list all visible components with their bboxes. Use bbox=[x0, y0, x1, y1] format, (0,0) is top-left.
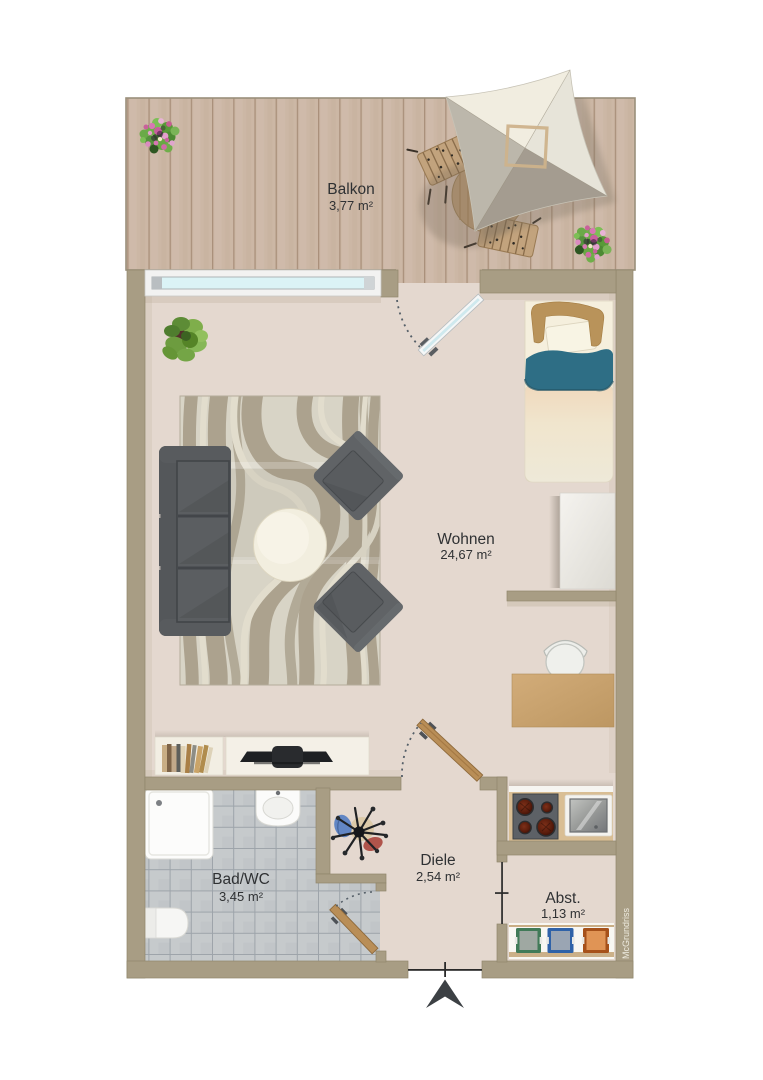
svg-text:3,45 m²: 3,45 m² bbox=[219, 889, 264, 904]
svg-text:Bad/WC: Bad/WC bbox=[212, 871, 270, 888]
svg-text:Wohnen: Wohnen bbox=[437, 531, 494, 548]
svg-text:2,54 m²: 2,54 m² bbox=[416, 869, 461, 884]
svg-text:1,13 m²: 1,13 m² bbox=[541, 906, 586, 921]
svg-text:Balkon: Balkon bbox=[327, 181, 374, 198]
svg-text:McGrundriss: McGrundriss bbox=[621, 907, 631, 959]
svg-text:Diele: Diele bbox=[420, 852, 455, 869]
svg-text:Abst.: Abst. bbox=[545, 890, 580, 907]
svg-text:3,77 m²: 3,77 m² bbox=[329, 198, 374, 213]
svg-text:24,67 m²: 24,67 m² bbox=[440, 547, 492, 562]
